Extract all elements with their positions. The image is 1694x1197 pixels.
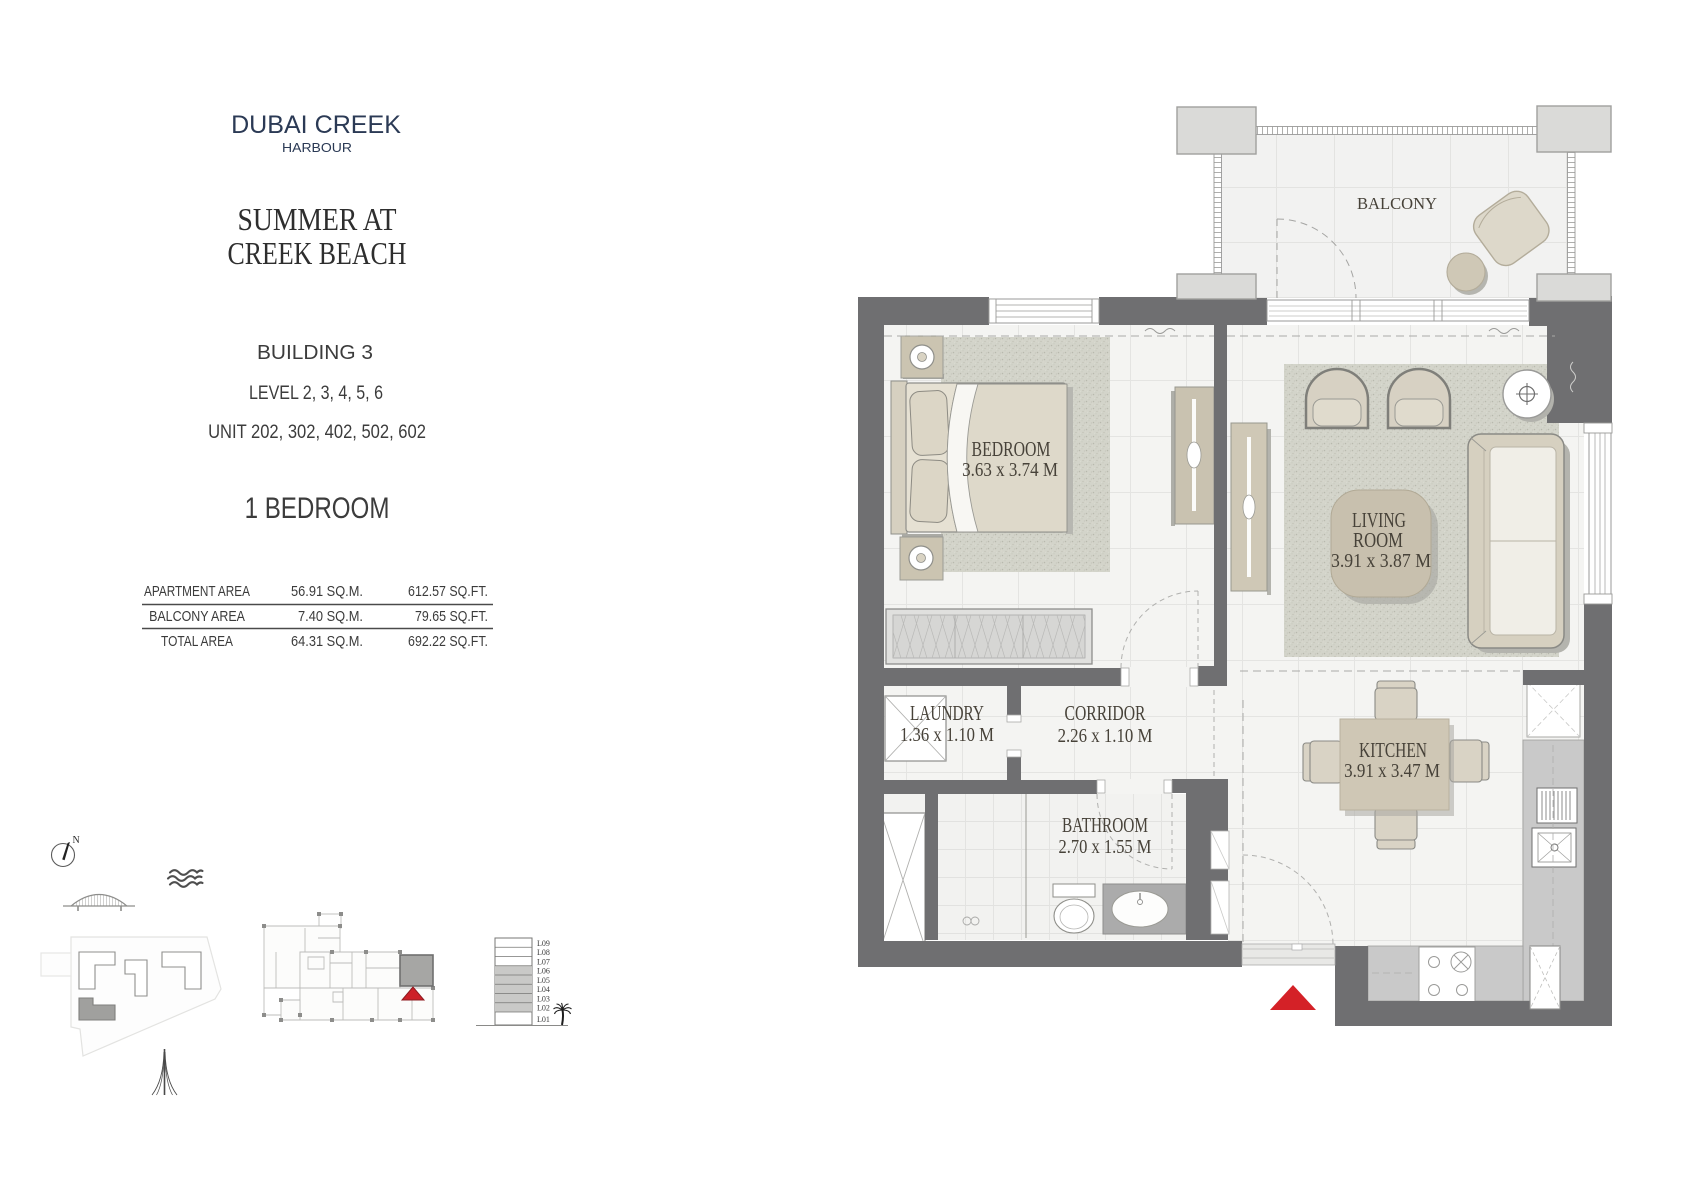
svg-text:L06: L06 <box>537 967 550 976</box>
svg-text:CREEK BEACH: CREEK BEACH <box>227 237 406 272</box>
svg-text:APARTMENT AREA: APARTMENT AREA <box>144 583 250 600</box>
svg-text:L01: L01 <box>537 1015 550 1024</box>
svg-text:L03: L03 <box>537 995 550 1004</box>
svg-text:BATHROOM: BATHROOM <box>1062 814 1148 837</box>
svg-text:79.65 SQ.FT.: 79.65 SQ.FT. <box>415 608 488 624</box>
svg-text:CORRIDOR: CORRIDOR <box>1065 702 1146 726</box>
svg-text:612.57 SQ.FT.: 612.57 SQ.FT. <box>408 583 488 599</box>
svg-text:1.36 x 1.10 M: 1.36 x 1.10 M <box>900 724 994 746</box>
svg-text:SUMMER AT: SUMMER AT <box>238 202 397 237</box>
svg-text:692.22 SQ.FT.: 692.22 SQ.FT. <box>408 633 488 649</box>
svg-text:L07: L07 <box>537 958 550 967</box>
svg-text:ROOM: ROOM <box>1353 529 1403 552</box>
svg-text:3.91 x 3.47 M: 3.91 x 3.47 M <box>1344 760 1440 783</box>
svg-text:7.40 SQ.M.: 7.40 SQ.M. <box>298 607 363 624</box>
svg-text:UNIT 202, 302, 402, 502, 602: UNIT 202, 302, 402, 502, 602 <box>208 421 426 442</box>
svg-text:KITCHEN: KITCHEN <box>1359 739 1427 762</box>
svg-text:LEVEL 2, 3, 4, 5, 6: LEVEL 2, 3, 4, 5, 6 <box>249 382 383 404</box>
svg-text:64.31 SQ.M.: 64.31 SQ.M. <box>291 632 363 649</box>
svg-text:TOTAL AREA: TOTAL AREA <box>161 633 234 650</box>
svg-text:2.26 x 1.10 M: 2.26 x 1.10 M <box>1058 725 1153 747</box>
svg-text:1 BEDROOM: 1 BEDROOM <box>245 490 390 524</box>
svg-text:2.70 x 1.55 M: 2.70 x 1.55 M <box>1059 836 1152 858</box>
svg-text:BALCONY AREA: BALCONY AREA <box>149 608 246 624</box>
svg-text:DUBAI CREEK: DUBAI CREEK <box>231 111 401 139</box>
svg-text:BALCONY: BALCONY <box>1357 194 1437 213</box>
svg-text:L05: L05 <box>537 976 550 985</box>
svg-text:L09: L09 <box>537 939 550 948</box>
svg-text:L02: L02 <box>537 1004 550 1013</box>
svg-text:N: N <box>73 835 80 846</box>
svg-text:HARBOUR: HARBOUR <box>282 140 352 154</box>
svg-text:3.63 x 3.74 M: 3.63 x 3.74 M <box>962 459 1058 482</box>
svg-text:BUILDING 3: BUILDING 3 <box>257 341 373 363</box>
svg-text:56.91 SQ.M.: 56.91 SQ.M. <box>291 582 363 599</box>
svg-text:LAUNDRY: LAUNDRY <box>910 702 984 725</box>
svg-text:L04: L04 <box>537 985 550 994</box>
svg-text:L08: L08 <box>537 948 550 957</box>
svg-text:3.91 x 3.87 M: 3.91 x 3.87 M <box>1331 550 1431 572</box>
